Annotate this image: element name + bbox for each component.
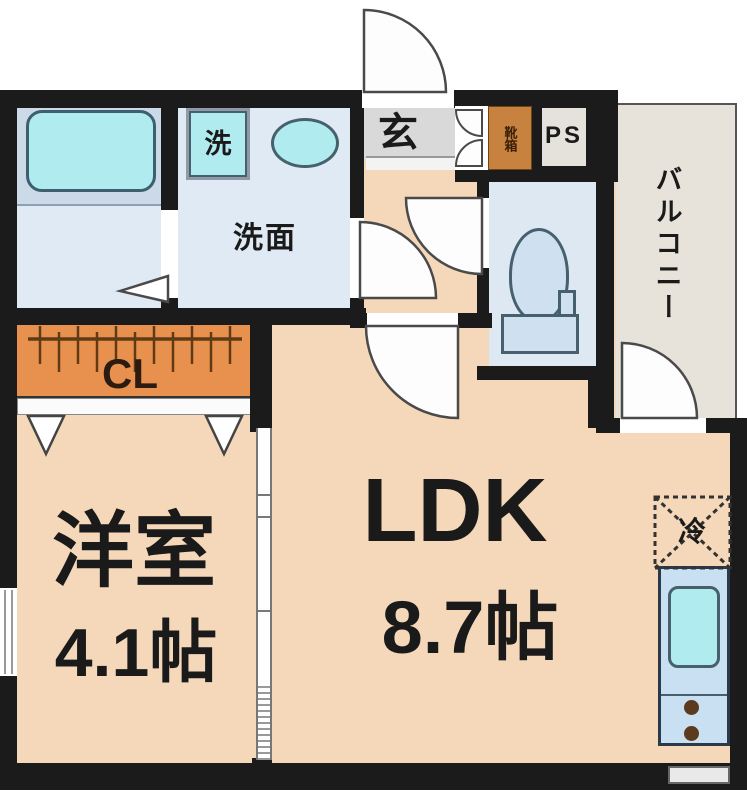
washroom-sink: [271, 118, 339, 168]
sliding-partition-break-1: [258, 494, 270, 496]
bathroom-door-opening: [161, 210, 178, 298]
toilet-door-opening: [477, 198, 489, 268]
bathtub: [26, 110, 156, 192]
wall-washroom-bottom: [0, 308, 366, 325]
entrance-door-swing: [364, 10, 446, 92]
balcony-door-opening: [620, 418, 706, 433]
toilet-tank: [501, 314, 579, 354]
pipe-space-label: PS: [538, 108, 590, 164]
washroom-label: 洗面: [205, 218, 325, 260]
wall-hall-left-top: [350, 108, 364, 218]
sliding-partition-break-2: [258, 516, 270, 518]
wall-toilet-bottom: [477, 366, 608, 380]
bathroom-lower-floor: [17, 204, 161, 308]
wall-closet-right: [250, 308, 272, 432]
wall-hall-bottom-left: [350, 313, 367, 328]
wall-bottom: [0, 763, 747, 790]
floor-plan: 玄 靴箱 PS バルコニー 洗 洗面 CL 洋室 4.1帖 LDK 8.7帖 冷: [0, 0, 747, 800]
western-room-label: 洋室: [28, 502, 240, 602]
kitchen-counter-divider: [661, 694, 727, 696]
entrance-door-opening: [362, 90, 454, 108]
western-room-size: 4.1帖: [12, 608, 260, 698]
hallway-floor: [364, 170, 477, 315]
ldk-label: LDK: [340, 458, 570, 563]
window-bottom-wall: [668, 766, 730, 784]
entrance-step: [366, 156, 456, 170]
washroom-door-opening: [350, 218, 364, 298]
ldk-size: 8.7帖: [328, 578, 612, 678]
shoe-door-zone: [455, 106, 488, 170]
wall-bath-divider-top: [161, 92, 178, 210]
closet-door-track: [17, 398, 252, 415]
ldk-door-opening: [367, 313, 458, 328]
refrigerator-label: 冷: [672, 512, 712, 552]
wall-right-lower: [730, 418, 747, 790]
washing-machine-label: 洗: [186, 108, 250, 180]
stove-burner-1: [684, 700, 699, 715]
entrance-label: 玄: [368, 108, 428, 158]
wall-hall-bottom-right: [458, 313, 492, 328]
kitchen-sink: [668, 586, 720, 668]
balcony-label: バルコニー: [642, 120, 690, 370]
stove-burner-2: [684, 726, 699, 741]
wall-partition-bottom: [252, 758, 272, 790]
closet-label: CL: [80, 350, 180, 398]
shoe-cabinet-label: 靴箱: [493, 110, 527, 168]
